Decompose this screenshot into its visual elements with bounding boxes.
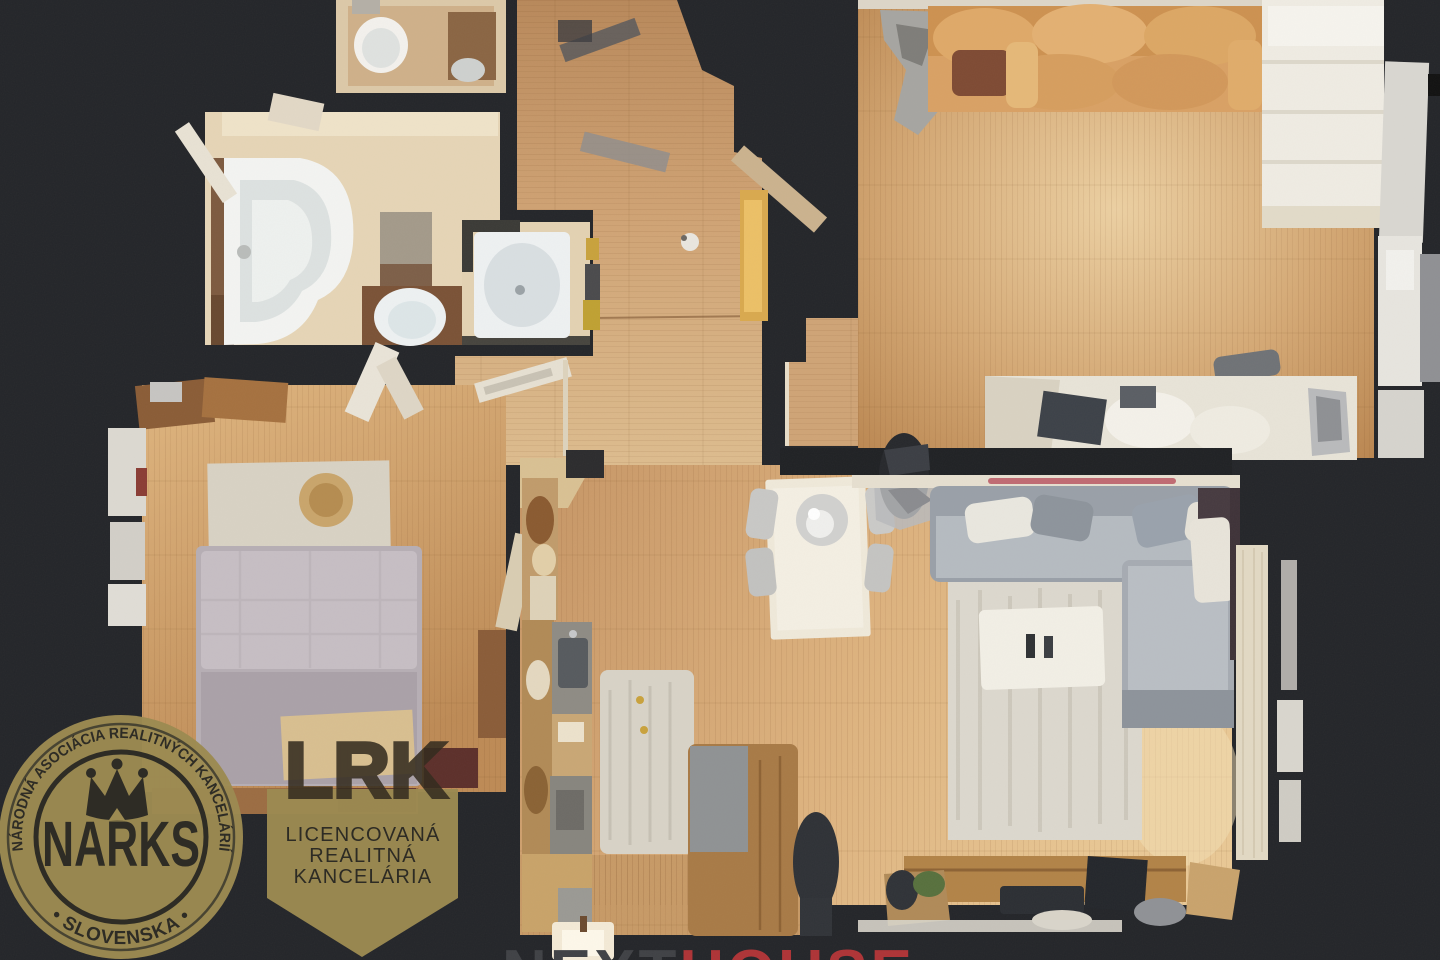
svg-text:LRK: LRK: [285, 726, 447, 814]
svg-text:REALITNÁ: REALITNÁ: [309, 844, 416, 867]
svg-text:LICENCOVANÁ: LICENCOVANÁ: [285, 823, 440, 846]
svg-text:NARKS: NARKS: [42, 808, 200, 880]
svg-text:KANCELÁRIA: KANCELÁRIA: [294, 865, 433, 888]
